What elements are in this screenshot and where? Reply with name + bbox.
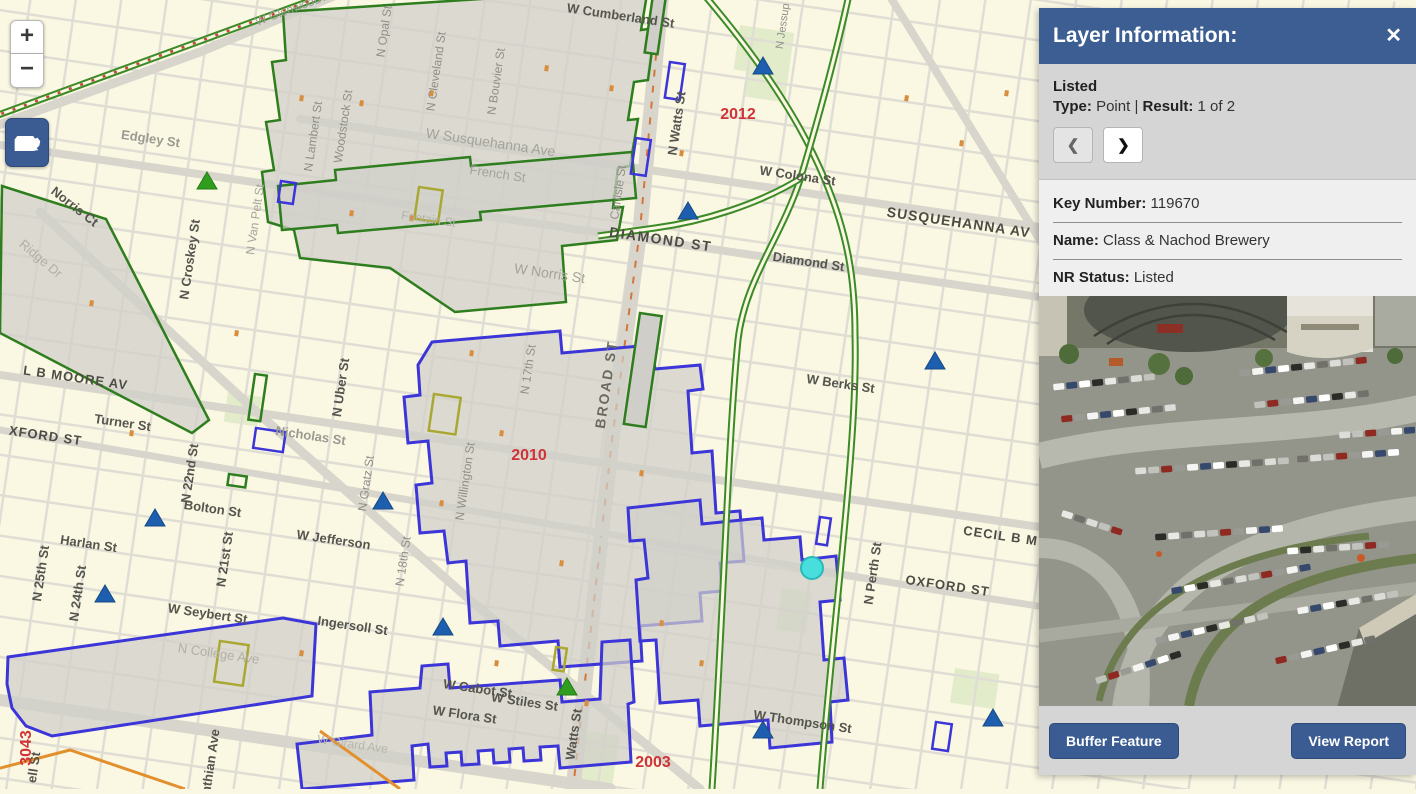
- year-label: 2010: [511, 447, 547, 464]
- attr-value: 119670: [1151, 195, 1200, 212]
- attr-row-name: Name: Class & Nachod Brewery: [1053, 223, 1402, 260]
- type-value: Point: [1096, 98, 1130, 115]
- aerial-photo: [1039, 296, 1416, 706]
- attributes-section: Key Number: 119670 Name: Class & Nachod …: [1039, 180, 1416, 296]
- zoom-out-button[interactable]: −: [10, 54, 44, 88]
- year-label: 2012: [720, 106, 756, 123]
- attr-value: Listed: [1134, 269, 1174, 286]
- attr-label: Name:: [1053, 232, 1099, 249]
- close-icon[interactable]: ✕: [1385, 26, 1402, 46]
- prev-result-button[interactable]: ❮: [1053, 127, 1093, 163]
- attr-label: NR Status:: [1053, 269, 1130, 286]
- separator: |: [1134, 98, 1138, 115]
- attr-row-key-number: Key Number: 119670: [1053, 186, 1402, 223]
- layer-info-panel: Layer Information: ✕ Listed Type: Point …: [1039, 8, 1416, 775]
- next-result-button[interactable]: ❯: [1103, 127, 1143, 163]
- type-label: Type:: [1053, 98, 1092, 115]
- pennsylvania-icon: [12, 133, 42, 153]
- year-label: 2003: [635, 754, 671, 771]
- zoom-in-button[interactable]: +: [10, 20, 44, 54]
- type-result-line: Type: Point | Result: 1 of 2: [1053, 98, 1402, 115]
- result-label: Result:: [1143, 98, 1194, 115]
- result-value: 1 of 2: [1198, 98, 1236, 115]
- view-report-button[interactable]: View Report: [1291, 723, 1406, 759]
- result-nav-section: Listed Type: Point | Result: 1 of 2 ❮ ❯: [1039, 64, 1416, 180]
- aerial-photo-image: [1039, 296, 1416, 706]
- panel-header: Layer Information: ✕: [1039, 8, 1416, 64]
- panel-title: Layer Information:: [1053, 24, 1237, 48]
- year-label: 3043: [18, 730, 35, 766]
- pennsylvania-extent-button[interactable]: [5, 118, 49, 167]
- panel-footer: Buffer Feature View Report: [1039, 706, 1416, 775]
- layer-name: Listed: [1053, 78, 1402, 95]
- attr-label: Key Number:: [1053, 195, 1146, 212]
- attr-row-nr-status: NR Status: Listed: [1053, 260, 1402, 296]
- attr-value: Class & Nachod Brewery: [1103, 232, 1270, 249]
- selected-point-marker[interactable]: [801, 557, 823, 579]
- buffer-feature-button[interactable]: Buffer Feature: [1049, 723, 1179, 759]
